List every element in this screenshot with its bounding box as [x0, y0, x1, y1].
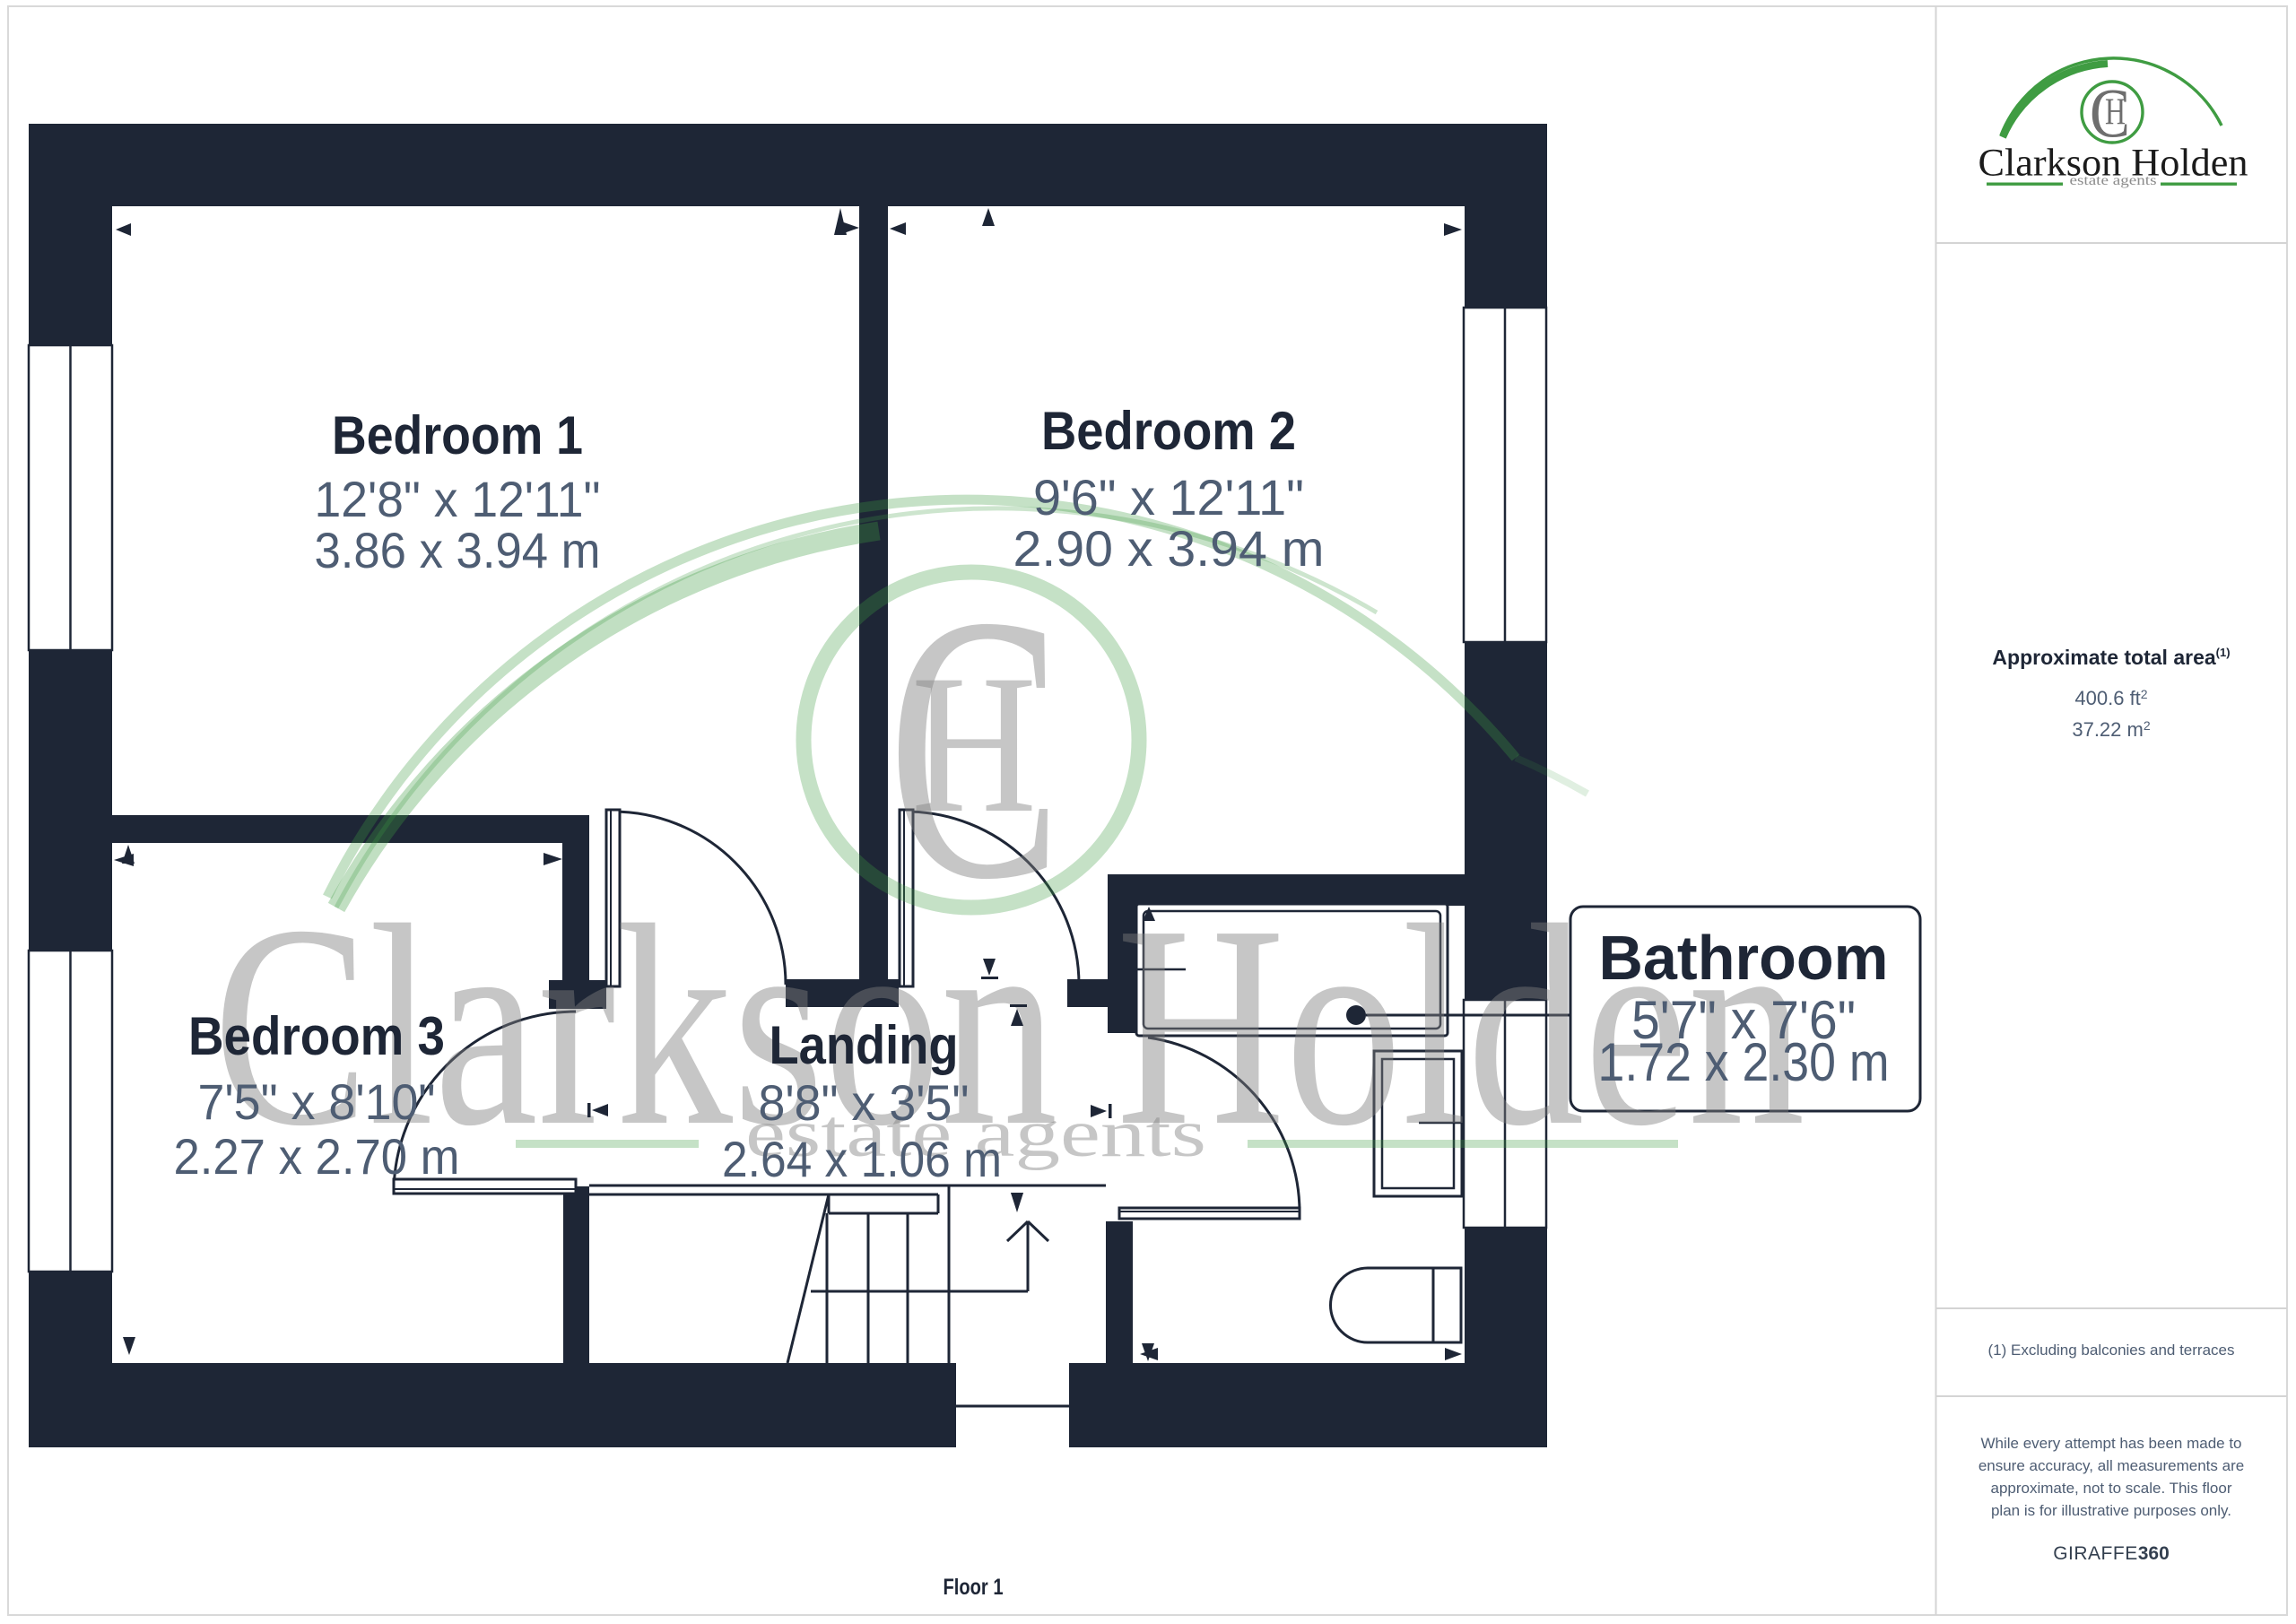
svg-text:8'8" x 3'5": 8'8" x 3'5": [759, 1074, 970, 1131]
svg-text:2.90 x 3.94 m: 2.90 x 3.94 m: [1013, 520, 1325, 577]
svg-text:plan is for illustrative purpo: plan is for illustrative purposes only.: [1991, 1502, 2231, 1519]
svg-text:H: H: [911, 634, 1037, 855]
svg-text:ensure accuracy, all measureme: ensure accuracy, all measurements are: [1979, 1457, 2244, 1474]
svg-text:estate agents: estate agents: [2070, 173, 2157, 188]
svg-text:3.86 x 3.94 m: 3.86 x 3.94 m: [315, 522, 601, 578]
svg-text:approximate, not to scale. Thi: approximate, not to scale. This floor: [1991, 1480, 2232, 1497]
svg-text:Bathroom: Bathroom: [1599, 923, 1889, 993]
svg-text:H: H: [2105, 92, 2126, 134]
svg-text:9'6" x 12'11": 9'6" x 12'11": [1033, 469, 1304, 525]
svg-text:GIRAFFE360: GIRAFFE360: [2053, 1543, 2170, 1564]
svg-text:Approximate total area(1): Approximate total area(1): [1992, 646, 2230, 669]
svg-text:400.6 ft2: 400.6 ft2: [2074, 687, 2147, 709]
svg-text:1.72 x 2.30 m: 1.72 x 2.30 m: [1598, 1032, 1890, 1092]
svg-text:Landing: Landing: [770, 1015, 959, 1075]
svg-text:2.64 x 1.06 m: 2.64 x 1.06 m: [722, 1131, 1002, 1187]
svg-text:12'8" x 12'11": 12'8" x 12'11": [315, 471, 601, 527]
svg-text:Floor 1: Floor 1: [944, 1575, 1004, 1600]
svg-text:7'5" x 8'10": 7'5" x 8'10": [198, 1073, 436, 1130]
svg-text:(1) Excluding balconies and te: (1) Excluding balconies and terraces: [1988, 1342, 2235, 1359]
svg-text:Bedroom 2: Bedroom 2: [1041, 401, 1296, 461]
svg-text:37.22 m2: 37.22 m2: [2072, 718, 2151, 741]
svg-text:Bedroom 3: Bedroom 3: [188, 1006, 445, 1066]
svg-text:2.27 x 2.70 m: 2.27 x 2.70 m: [174, 1128, 460, 1185]
svg-text:While every attempt has been m: While every attempt has been made to: [1980, 1435, 2241, 1452]
svg-text:Bedroom 1: Bedroom 1: [332, 405, 583, 465]
